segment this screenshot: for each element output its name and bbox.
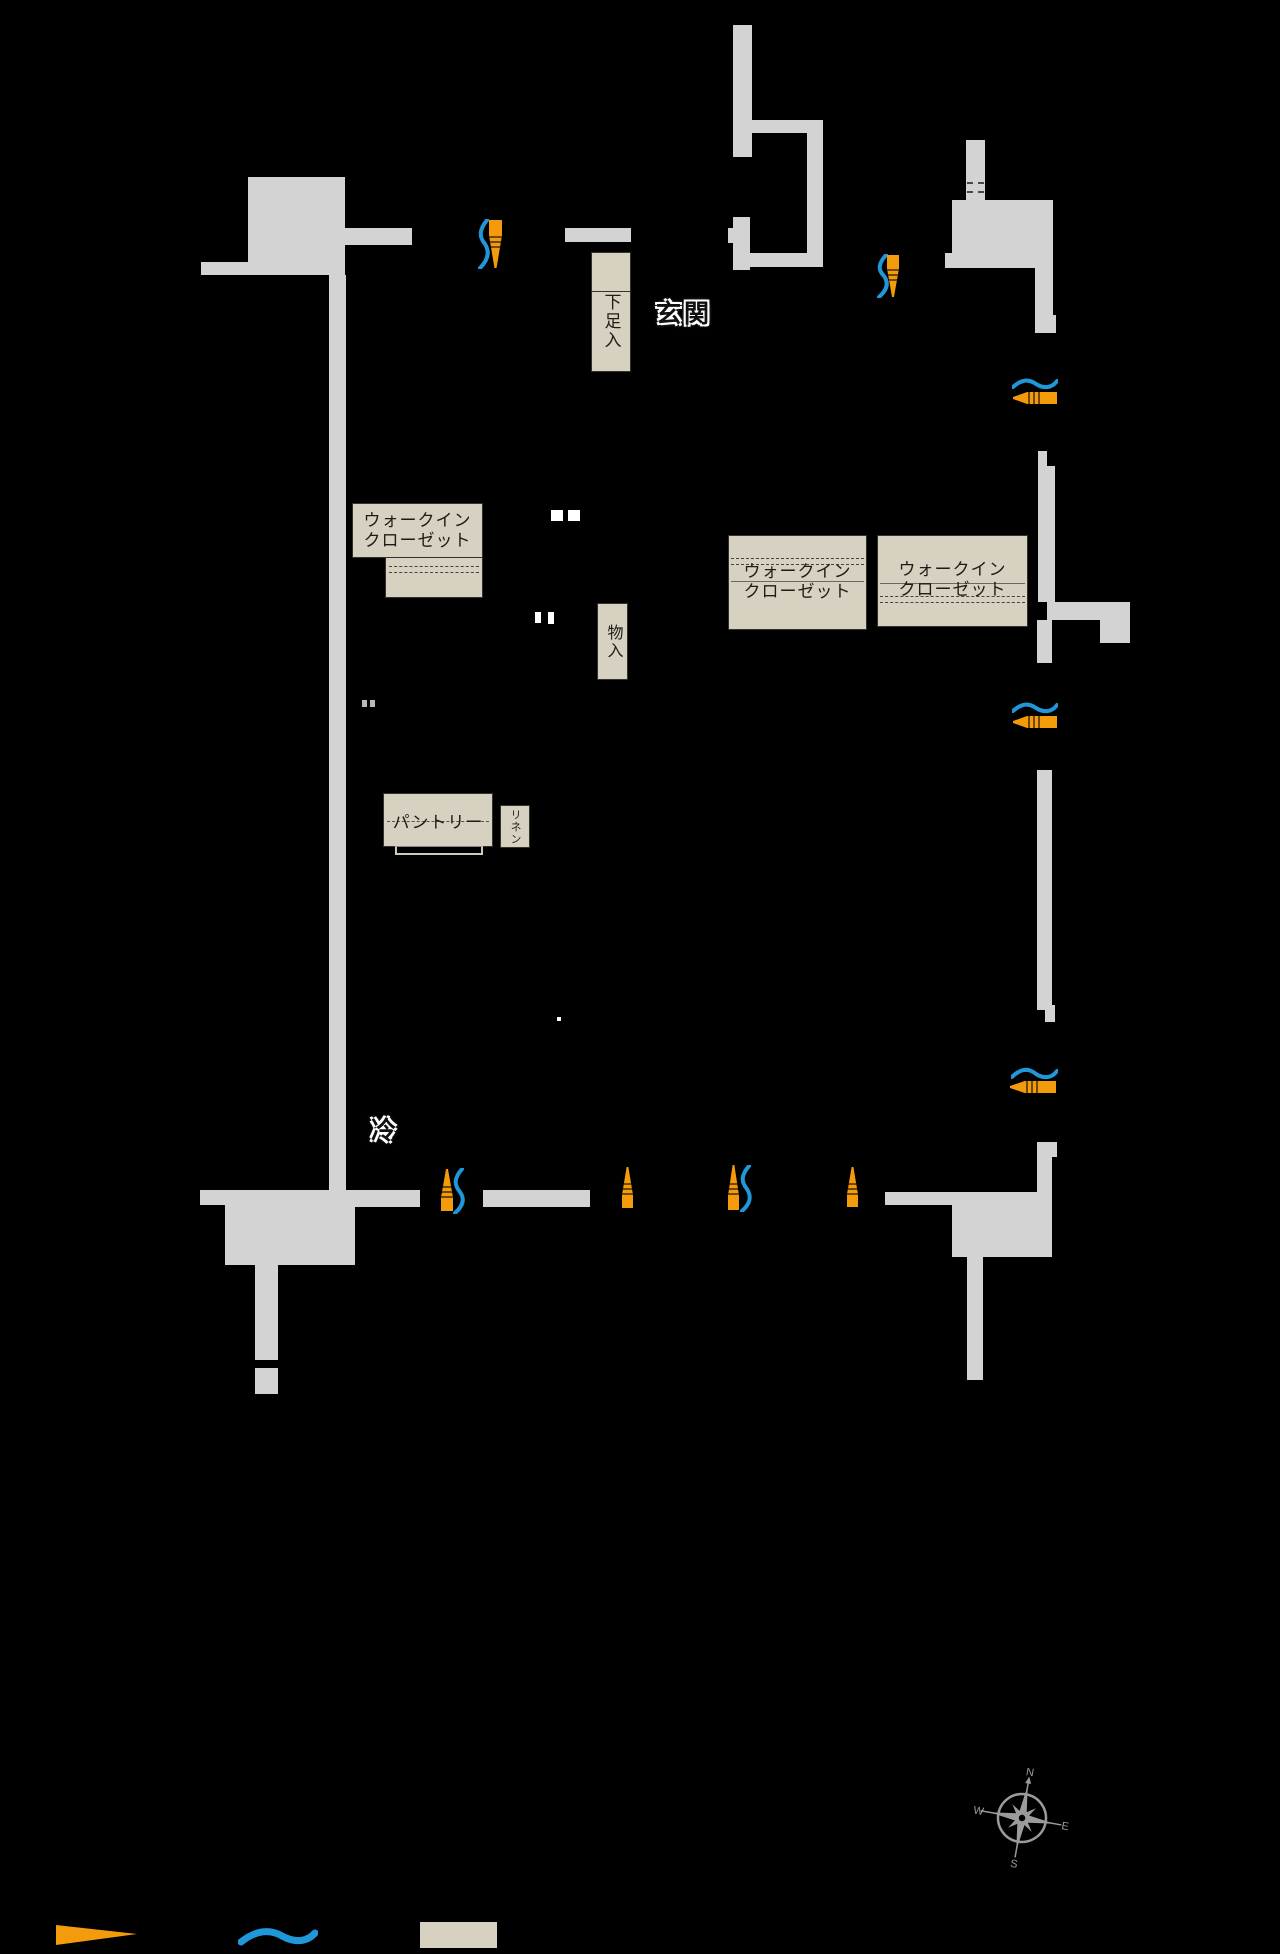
- wall-segment: [345, 228, 412, 245]
- door-swing-icon: [1012, 377, 1058, 391]
- wall-segment: [248, 177, 345, 262]
- compass-e-label: E: [1060, 1820, 1069, 1833]
- wall-segment: [565, 228, 631, 242]
- door-swing-icon: [452, 1168, 465, 1214]
- room-box-wic-1-closet: [385, 557, 483, 598]
- fixture-mark: [535, 612, 541, 623]
- room-label: リネン: [507, 809, 523, 845]
- wall-opening-dash: [967, 191, 984, 193]
- shelf-divider: [592, 291, 630, 292]
- door-leaf-icon: [1013, 716, 1057, 728]
- label-genkan: 玄関: [656, 294, 712, 330]
- wall-segment: [201, 262, 345, 275]
- fixture-mark: [568, 510, 580, 521]
- room-label: 物入: [601, 624, 625, 660]
- wall-opening-dash: [967, 182, 984, 184]
- wall-segment: [1038, 466, 1055, 602]
- compass-n-label: N: [1025, 1768, 1035, 1779]
- door-leaf-icon: [622, 1167, 633, 1208]
- wall-segment: [1035, 315, 1056, 333]
- room-box-linen: リネン: [500, 805, 530, 848]
- wall-segment: [345, 1190, 420, 1207]
- counter-outline: [395, 846, 483, 855]
- wall-segment: [1100, 620, 1130, 643]
- compass-rose-icon: N E S W: [972, 1768, 1072, 1868]
- room-label: クローゼット: [878, 580, 1027, 600]
- door-leaf-icon: [489, 220, 502, 268]
- wall-segment: [1047, 602, 1130, 620]
- door-swing-icon: [1012, 701, 1058, 715]
- wall-segment: [1038, 451, 1047, 466]
- fixture-mark: [548, 612, 554, 624]
- door-swing-icon: [739, 1165, 752, 1212]
- wall-segment: [967, 1257, 983, 1380]
- room-label: ウォークイン: [729, 562, 866, 582]
- legend-storage-box-icon: [420, 1922, 497, 1948]
- wall-segment: [329, 275, 346, 1205]
- fixture-mark: [557, 1017, 561, 1021]
- hanger-pipe-dashes: [389, 566, 479, 573]
- floor-plan: 下足入 ウォークイン クローゼット ウォークイン クローゼット ウォークイン ク…: [0, 0, 1280, 1954]
- door-leaf-icon: [847, 1167, 858, 1207]
- wall-segment: [733, 217, 750, 270]
- wall-segment: [728, 228, 733, 243]
- room-label: パントリー: [393, 808, 484, 833]
- wall-segment: [255, 1265, 278, 1360]
- wall-segment: [807, 133, 823, 257]
- room-label: クローゼット: [353, 531, 482, 551]
- wall-segment: [952, 1192, 1052, 1257]
- room-label: クローゼット: [729, 582, 866, 602]
- wall-segment: [752, 120, 823, 133]
- room-box-wic-2: ウォークイン クローゼット: [728, 535, 867, 630]
- label-refrigerator: 冷: [371, 1111, 399, 1147]
- room-label: 下足入: [599, 293, 624, 350]
- wall-segment: [200, 1190, 330, 1205]
- room-box-storage: 物入: [597, 603, 628, 680]
- room-box-shoe-cabinet: 下足入: [591, 252, 631, 372]
- door-leaf-icon: [1013, 392, 1057, 404]
- wall-segment: [1037, 770, 1052, 1010]
- wall-segment: [733, 25, 752, 157]
- door-leaf-icon: [728, 1165, 739, 1210]
- compass-w-label: W: [972, 1805, 985, 1819]
- legend-swing-arc-icon: [238, 1925, 318, 1949]
- fixture-mark: [551, 510, 563, 521]
- door-swing-icon: [1011, 1066, 1058, 1081]
- room-label: ウォークイン: [353, 511, 482, 531]
- room-label: ウォークイン: [878, 560, 1027, 580]
- wall-segment: [1037, 1142, 1057, 1157]
- fixture-mark: [370, 700, 375, 707]
- fixture-mark: [362, 700, 367, 707]
- wall-segment: [885, 1192, 952, 1205]
- wall-segment: [952, 200, 1053, 268]
- wall-segment: [225, 1205, 355, 1265]
- wall-segment: [1035, 268, 1053, 315]
- wall-segment: [1037, 620, 1052, 663]
- wall-segment: [483, 1190, 590, 1207]
- room-box-wic-1: ウォークイン クローゼット: [352, 503, 483, 558]
- legend-door-leaf-icon: [56, 1925, 137, 1945]
- door-swing-icon: [477, 219, 490, 269]
- room-box-pantry: パントリー: [383, 793, 493, 847]
- door-leaf-icon: [1010, 1081, 1056, 1093]
- room-box-wic-3: ウォークイン クローゼット: [877, 535, 1028, 627]
- compass-s-label: S: [1009, 1858, 1018, 1868]
- wall-segment: [1045, 1005, 1055, 1022]
- wall-segment: [945, 253, 952, 268]
- wall-segment: [255, 1368, 278, 1394]
